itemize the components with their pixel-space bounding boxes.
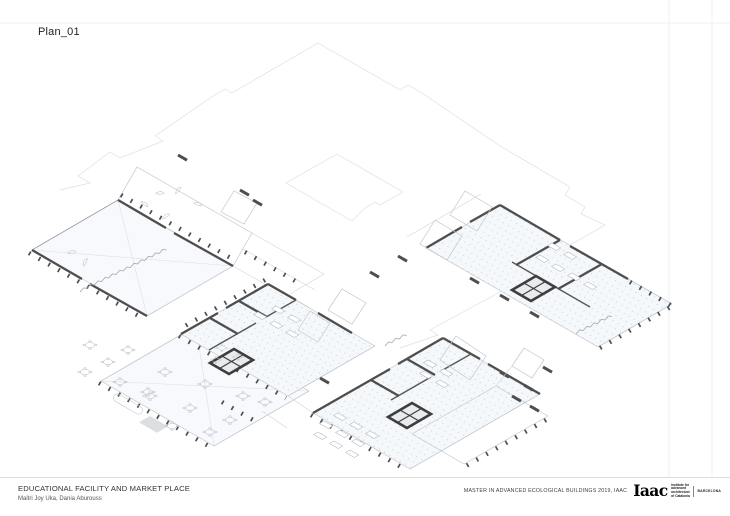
footer-right: MASTER IN ADVANCED ECOLOGICAL BUILDINGS … [464,481,721,501]
plate-market-hall [370,191,674,348]
plate-assembly-hall [29,167,257,319]
stair-grid [512,348,544,378]
plan-title: Plan_01 [38,26,80,38]
courtyard-outline [286,154,403,221]
title-block: EDUCATIONAL FACILITY AND MARKET PLACE Ma… [18,484,190,502]
stair-grid [328,289,366,324]
project-authors: Maitri Joy Uka, Dania Aburouss [18,496,190,502]
iaac-institute-text: Institute for advanced architecture of C… [671,484,690,499]
program-name: MASTER IN ADVANCED ECOLOGICAL BUILDINGS … [464,488,627,494]
institute-line: of Catalonia [671,495,690,499]
folding-partition-zigzag [385,335,407,346]
iaac-wordmark: Iaac [633,483,667,499]
iaac-city: BARCELONA [698,489,721,493]
presentation-sheet: Plan_01 EDUCATIONAL FACILITY AND MARKET … [0,0,730,516]
logo-divider [693,486,694,497]
project-title: EDUCATIONAL FACILITY AND MARKET PLACE [18,484,190,493]
stair-grid [221,191,257,224]
floor-patch [139,416,168,433]
axonometric-plan-drawing [0,0,730,516]
iaac-logo: Iaac Institute for advanced architecture… [633,483,721,499]
